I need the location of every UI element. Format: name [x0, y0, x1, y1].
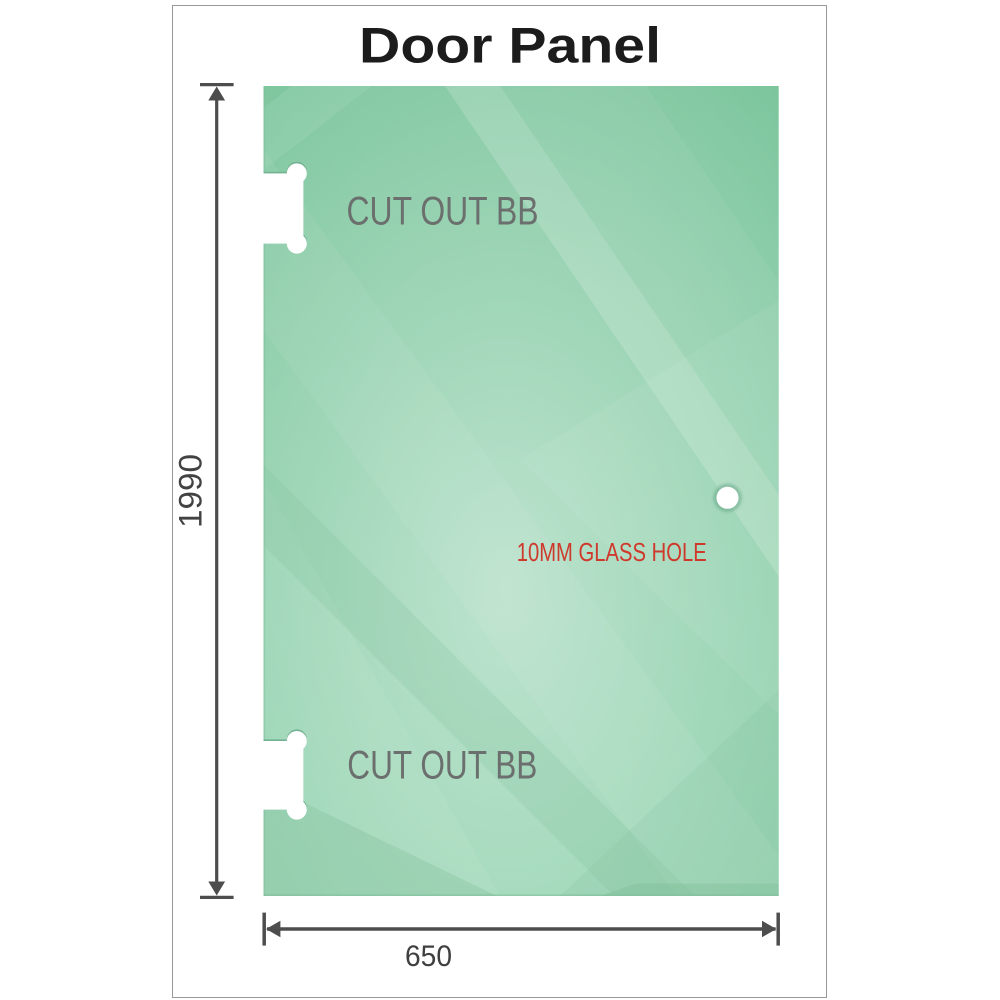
svg-text:1990: 1990	[172, 454, 208, 528]
svg-text:650: 650	[405, 940, 452, 973]
svg-text:CUT OUT BB: CUT OUT BB	[347, 743, 537, 787]
svg-text:Door Panel: Door Panel	[359, 18, 661, 74]
svg-text:10MM GLASS HOLE: 10MM GLASS HOLE	[517, 537, 707, 567]
svg-text:CUT OUT BB: CUT OUT BB	[347, 189, 539, 233]
